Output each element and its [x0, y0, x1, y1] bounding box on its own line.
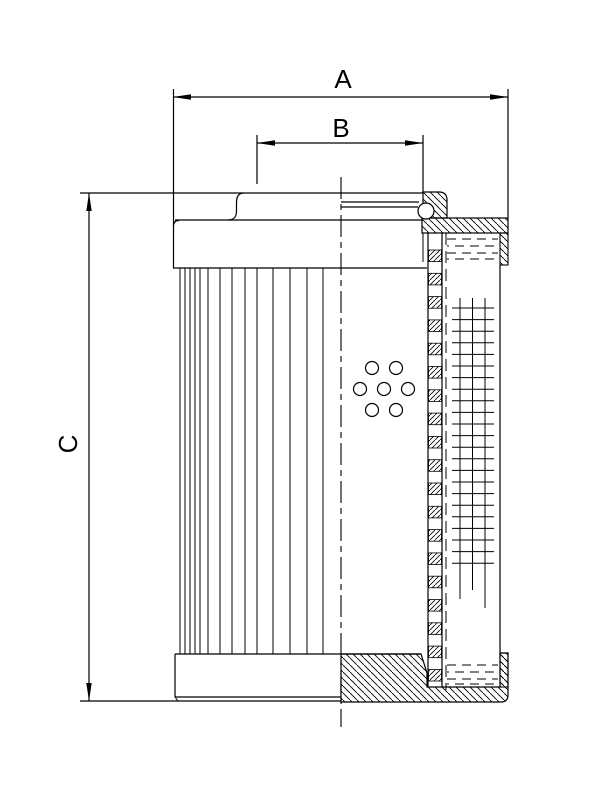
drawing-background: [0, 0, 612, 792]
filter-element-sectional-drawing: C A B: [0, 0, 612, 792]
dimension-c-label: C: [53, 435, 83, 454]
technical-drawing-page: C A B: [0, 0, 612, 792]
dimension-a-label: A: [334, 64, 352, 94]
o-ring-seal: [418, 203, 434, 219]
dimension-b-label: B: [332, 113, 349, 143]
mounting-flange-section: [422, 218, 508, 233]
